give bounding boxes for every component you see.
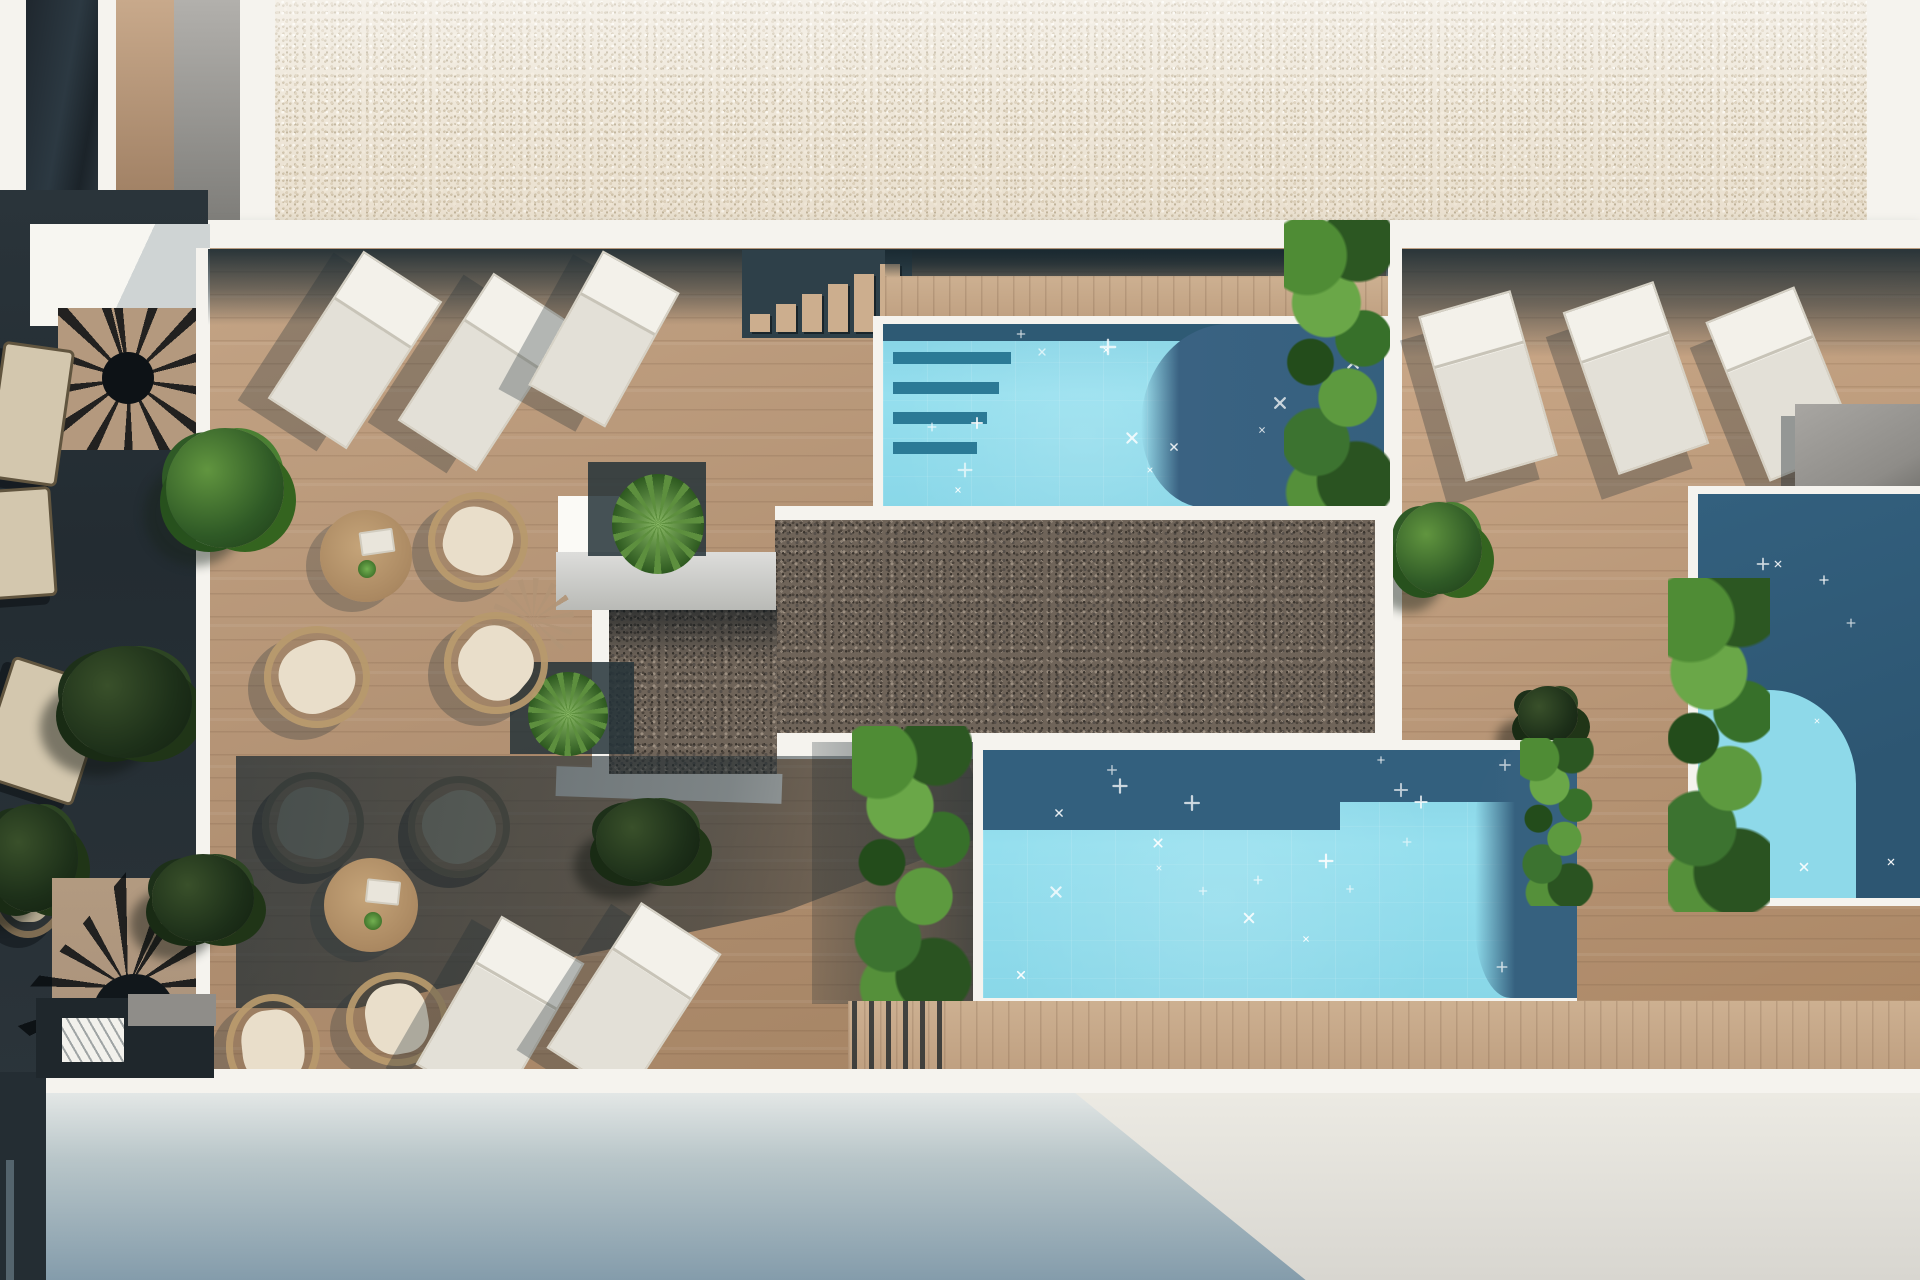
water-sparkle [1346,885,1354,893]
pool-step [893,412,987,424]
water-sparkle [1239,908,1259,928]
upper-roof-right-edge [1867,0,1920,252]
right-deck-bush-1 [1396,502,1482,594]
water-sparkle [1757,558,1770,571]
vine-planter-top [1284,220,1390,516]
terrace-bench-2 [0,486,58,600]
facade-corner-highlight [6,1160,14,1280]
spiral-staircase-upper-core [102,352,154,404]
water-sparkle [1101,345,1110,354]
rooftop-render [0,0,1920,1280]
agave-plant-1 [612,474,704,574]
rattan-chair-3 [444,612,548,714]
facade-wall [0,1093,1920,1280]
gravel-rim-right [1375,506,1393,759]
rattan-chair-1 [428,492,528,590]
right-deck-bush-2 [1518,686,1578,744]
water-sparkle [1121,427,1143,449]
water-sparkle [1403,838,1412,847]
facade-sunlit-wedge [0,1093,1920,1280]
terrace-bush-1 [62,646,192,758]
water-sparkle [958,463,973,478]
water-sparkle [1199,887,1208,896]
water-sparkle [1045,881,1066,902]
round-table-1 [320,510,412,602]
bottom-pool-water [983,750,1577,998]
water-sparkle [1318,853,1333,868]
deck-bush-top [166,428,284,548]
vine-planter-bottom-left [852,726,972,1010]
gravel-wall-shadow [609,606,777,660]
stair-tread [802,294,822,332]
bottom-pool-shade-left [983,750,1340,830]
water-sparkle [1149,834,1166,851]
boardwalk-railing-shadows [852,1001,948,1071]
vine-planter-right-pool [1668,578,1770,912]
upper-gravel-roof [275,0,1867,224]
pool-step [893,442,977,454]
shadow-bush [596,798,700,882]
deck-left-wall [196,248,210,1093]
pool-step [893,382,999,394]
water-sparkle [1772,558,1785,571]
water-sparkle [1301,934,1312,945]
pool-step [893,352,1011,364]
water-sparkle [1100,339,1117,356]
water-sparkle [1154,863,1163,872]
water-sparkle [1885,856,1897,868]
stair-tread [854,274,874,332]
stair-tread [776,304,796,332]
deck-bush-left [152,854,254,942]
water-sparkle [1013,967,1028,982]
stair-tread [828,284,848,332]
round-table-2 [324,858,418,952]
vine-over-bottom-pool [1520,738,1594,906]
gray-block-bottom-left [128,994,216,1026]
water-sparkle [953,485,963,495]
stair-tread [750,314,770,332]
bottom-boardwalk [848,1001,1920,1071]
water-sparkle [1847,619,1856,628]
slatted-bridge [62,1018,124,1062]
left-edge-wall [0,0,26,195]
water-sparkle [1819,575,1828,584]
water-sparkle [1035,345,1049,359]
gravel-bed-main [775,520,1375,733]
rattan-chair-2 [264,626,370,728]
water-sparkle [1254,876,1263,885]
